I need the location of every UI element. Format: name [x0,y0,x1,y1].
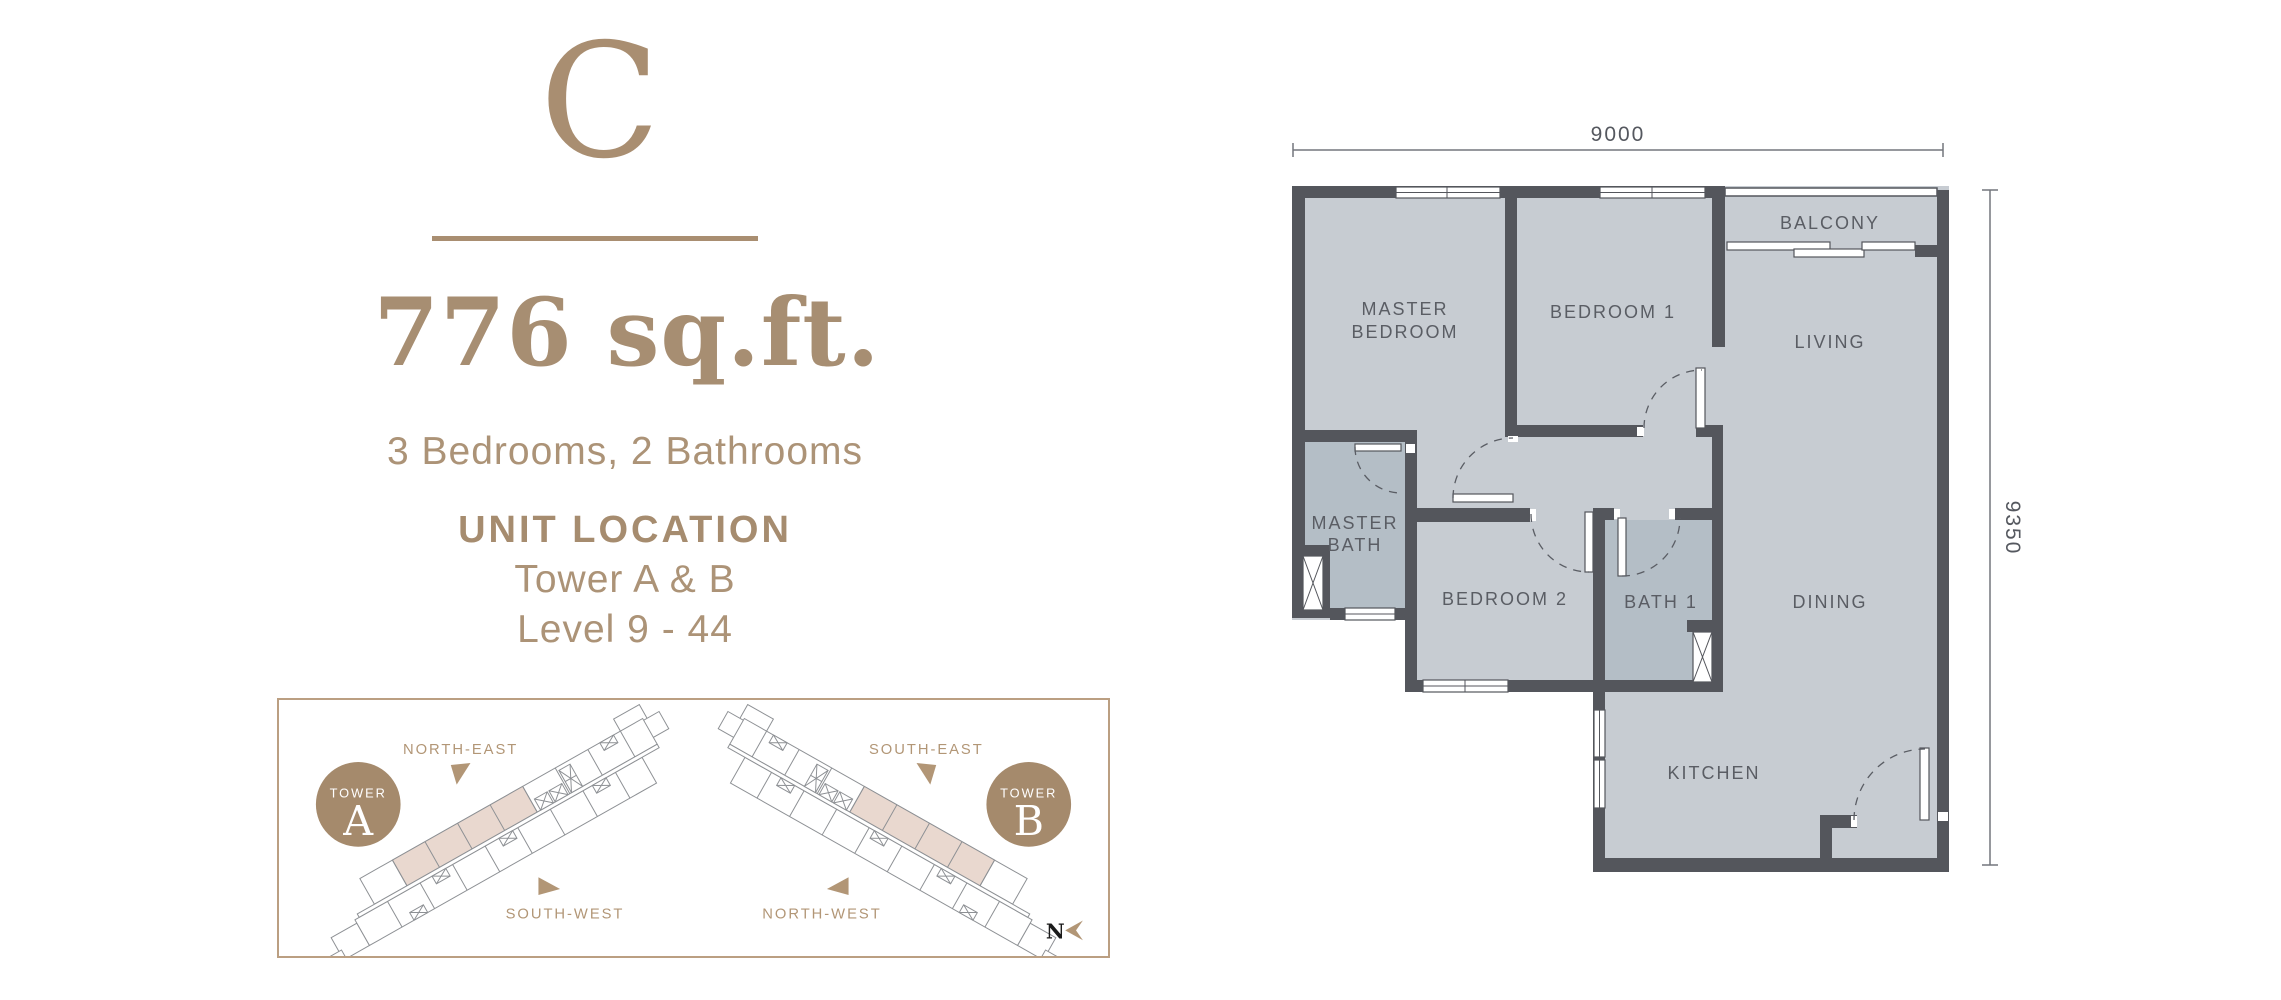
door-leaf-bedroom1 [1696,368,1705,428]
tower-location-box: TOWER A TOWER B NORTH-EAST SOUTH-WEST SO… [277,698,1110,958]
room-label-living: LIVING [1794,332,1865,352]
tower-a-direction-bottom: SOUTH-WEST [506,907,625,923]
tower-b-direction-top: SOUTH-EAST [869,742,984,758]
unit-type-letter: C [400,22,800,202]
door-leaf-master-bedroom [1453,494,1513,502]
north-arrow-icon [1065,921,1083,941]
unit-location-title: UNIT LOCATION [325,509,925,552]
room-label-master-bath-line1: MASTER [1311,513,1398,533]
door-leaf-bedroom2 [1585,512,1593,572]
room-label-bedroom1: BEDROOM 1 [1550,302,1676,322]
north-label: N [1046,919,1065,943]
room-label-master-bedroom-line1: MASTER [1361,299,1448,319]
unit-levels: Level 9 - 44 [325,608,925,652]
unit-area: 776 sq.ft. [327,278,927,388]
room-label-dining: DINING [1793,592,1868,612]
tower-diagram-svg: TOWER A TOWER B NORTH-EAST SOUTH-WEST SO… [279,700,1108,956]
tower-a-flag-top-icon [451,763,471,785]
sliding-door-panel-2 [1794,249,1864,257]
tower-a-letter: A [342,797,374,845]
tower-b-letter: B [1014,797,1044,845]
unit-config: 3 Bedrooms, 2 Bathrooms [325,430,925,474]
tower-b-badge: TOWER B [986,762,1071,847]
floor-plan-svg: MASTER BEDROOM BEDROOM 1 BALCONY LIVING … [1260,50,2080,940]
sliding-door-panel-3 [1862,242,1915,250]
room-label-bath1: BATH 1 [1624,592,1698,612]
dimension-right-label: 9350 [2001,501,2024,556]
room-label-kitchen: KITCHEN [1667,763,1760,783]
unit-towers: Tower A & B [325,558,925,602]
tower-a-flag-bottom-icon [538,877,560,895]
tower-a-badge: TOWER A [316,762,401,847]
room-label-master-bedroom-line2: BEDROOM [1351,322,1458,342]
room-label-master-bath-line2: BATH [1328,535,1383,555]
door-leaf-bath1 [1618,518,1626,576]
balcony-railing [1725,188,1937,196]
north-indicator: N [1046,919,1083,943]
room-label-bedroom2: BEDROOM 2 [1442,589,1568,609]
door-leaf-entrance [1920,748,1929,820]
room-label-balcony: BALCONY [1780,213,1880,233]
door-leaf-master-bath [1355,444,1401,451]
brochure-page: C 776 sq.ft. 3 Bedrooms, 2 Bathrooms UNI… [0,0,2281,1000]
dimension-top-label: 9000 [1591,123,1646,146]
tower-b-flag-bottom-icon [827,877,849,895]
tower-b-flag-top-icon [917,763,937,785]
tower-a-direction-top: NORTH-EAST [403,742,518,758]
tower-b-direction-bottom: NORTH-WEST [762,907,881,923]
divider-line [432,236,758,241]
